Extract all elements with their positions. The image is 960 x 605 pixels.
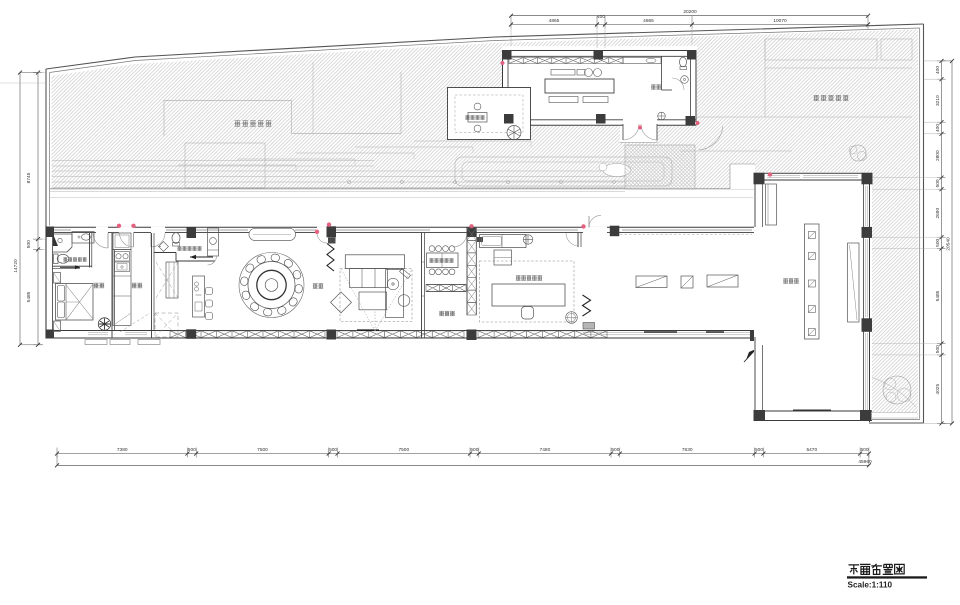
svg-text:500: 500 <box>935 179 941 187</box>
svg-text:4865: 4865 <box>549 18 560 24</box>
svg-text:10070: 10070 <box>773 18 787 24</box>
svg-text:7500: 7500 <box>257 447 268 453</box>
svg-text:20540: 20540 <box>946 237 952 251</box>
svg-text:500: 500 <box>860 447 868 453</box>
svg-text:Scale:1:110: Scale:1:110 <box>848 581 893 590</box>
svg-text:400: 400 <box>597 14 605 20</box>
svg-text:14720: 14720 <box>13 259 19 273</box>
svg-text:2690: 2690 <box>935 208 941 219</box>
svg-text:7480: 7480 <box>540 447 551 453</box>
svg-text:5485: 5485 <box>26 291 32 302</box>
svg-text:500: 500 <box>26 240 32 248</box>
svg-text:8745: 8745 <box>26 172 32 183</box>
svg-text:500: 500 <box>935 238 941 246</box>
svg-text:7630: 7630 <box>682 447 693 453</box>
svg-text:500: 500 <box>755 447 763 453</box>
svg-text:2800: 2800 <box>935 150 941 161</box>
svg-text:4025: 4025 <box>935 384 941 395</box>
svg-text:7500: 7500 <box>398 447 409 453</box>
svg-text:4865: 4865 <box>643 18 654 24</box>
svg-text:400: 400 <box>935 66 941 74</box>
svg-text:400: 400 <box>935 124 941 132</box>
svg-text:45960: 45960 <box>858 459 872 465</box>
svg-text:5470: 5470 <box>806 447 817 453</box>
svg-text:500: 500 <box>188 447 196 453</box>
svg-text:5485: 5485 <box>935 290 941 301</box>
svg-text:3210: 3210 <box>935 95 941 106</box>
svg-text:7380: 7380 <box>117 447 128 453</box>
svg-text:20200: 20200 <box>683 9 697 15</box>
svg-text:500: 500 <box>470 447 478 453</box>
svg-text:500: 500 <box>935 345 941 353</box>
svg-text:500: 500 <box>329 447 337 453</box>
svg-text:500: 500 <box>611 447 619 453</box>
